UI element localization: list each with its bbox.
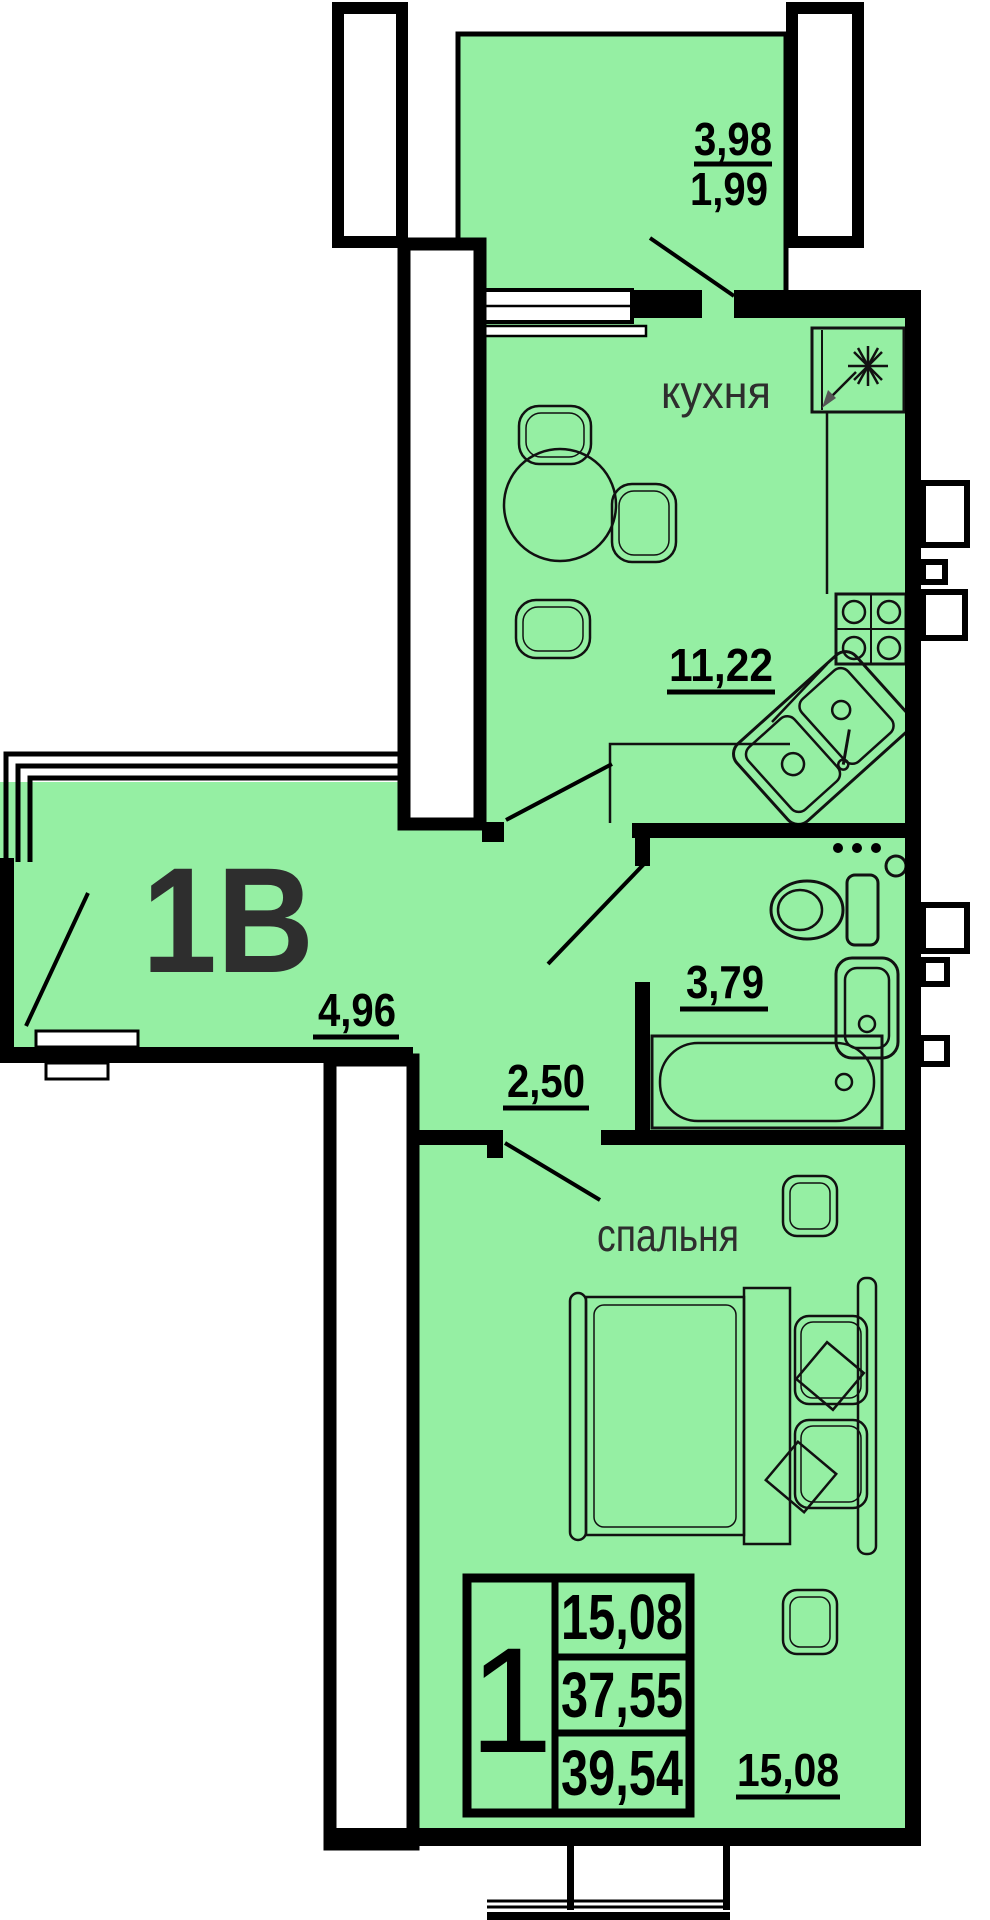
vent-shafts [921, 483, 967, 1064]
west-core-wall [404, 244, 480, 824]
entrance-step [46, 1063, 108, 1079]
shaft-box [923, 562, 945, 582]
rooms-count: 1 [469, 1616, 552, 1784]
hook-dot [833, 843, 843, 853]
bedroom-door-jamb [487, 1130, 503, 1158]
shaft-box [923, 483, 967, 545]
kitchen-label: кухня [661, 366, 771, 418]
bedroom-label: спальня [597, 1209, 739, 1261]
shaft-box [923, 960, 947, 984]
total-area-value: 39,54 [561, 1737, 683, 1809]
wall-stub-right [792, 8, 858, 242]
bedroom-window [487, 1846, 730, 1920]
hook-dot [852, 843, 862, 853]
entrance-door-leaf [36, 1031, 138, 1047]
hook-dot [871, 843, 881, 853]
balcony-area-dimension: 1,99 [690, 163, 768, 215]
hallway-west-wall [0, 858, 14, 1048]
shaft-box [921, 1038, 947, 1064]
bedroom-west-wall [330, 1060, 413, 1844]
hallway-south-wall [0, 1047, 413, 1063]
wall-stub-left [338, 8, 402, 242]
shaft-box [923, 905, 967, 951]
apartment-type-label: 1В [142, 836, 314, 1004]
bathroom-south-wall [601, 1130, 921, 1145]
kitchen-door-jamb [482, 822, 504, 842]
south-wall [330, 1828, 921, 1846]
floor-plan-drawing: 1 15,08 37,55 39,54 3,98 1,99 кухня 11,2… [0, 0, 990, 1920]
corridor-area-dimension: 2,50 [507, 1055, 585, 1107]
bedroom-area-dimension: 15,08 [737, 1744, 839, 1796]
bathroom-north-wall [632, 823, 921, 838]
kitchen-area-dimension: 11,22 [669, 639, 773, 691]
balcony-width-dimension: 3,98 [694, 113, 772, 165]
shaft-box [923, 592, 965, 638]
window-sill [468, 326, 646, 336]
bathroom-area-dimension: 3,79 [686, 956, 764, 1008]
bathroom-west-wall [635, 982, 650, 1130]
hallway-area-dimension: 4,96 [318, 984, 396, 1036]
living-area-value: 15,08 [561, 1581, 683, 1653]
kitchen-window [468, 290, 646, 336]
apartment-area-value: 37,55 [561, 1659, 683, 1731]
floor-plan-page: 1 15,08 37,55 39,54 3,98 1,99 кухня 11,2… [0, 0, 990, 1920]
